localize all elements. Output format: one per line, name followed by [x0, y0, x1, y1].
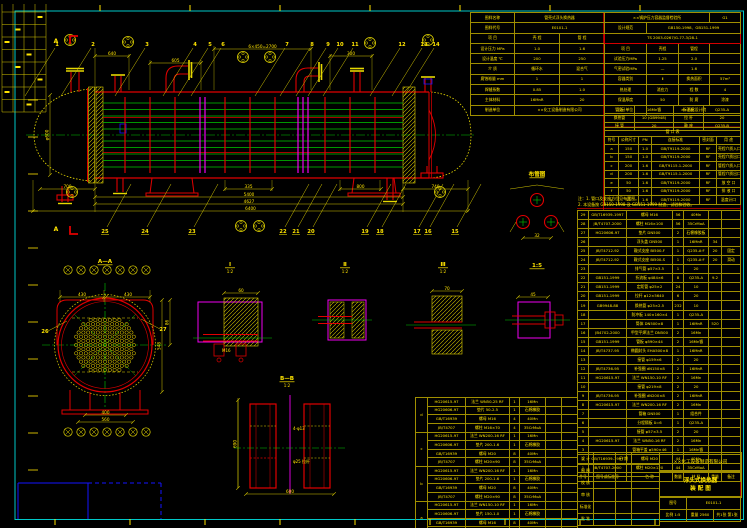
table-cell: 16Mn — [520, 398, 546, 407]
table-cell: 2 — [673, 373, 684, 382]
table-cell: 16MnR — [684, 364, 709, 373]
svg-text:430: 430 — [78, 292, 86, 297]
table-cell: a — [416, 501, 428, 528]
table-cell: 8 — [510, 518, 520, 527]
table-cell — [722, 410, 741, 419]
table-cell — [589, 419, 627, 428]
table-cell: 520 — [709, 319, 722, 328]
table-cell: 7 — [578, 410, 589, 419]
table-cell: 2 — [673, 364, 684, 373]
table-cell: 管 板 — [605, 106, 635, 114]
table-cell: 2 — [673, 382, 684, 391]
table-cell: 2 — [673, 229, 684, 238]
table-cell: GB/T9115.1-2000 — [652, 162, 700, 171]
svg-text:5: 5 — [208, 42, 212, 48]
table-cell — [562, 475, 578, 484]
table-cell: GB/T16939 — [428, 484, 466, 493]
table-cell: 6 — [578, 419, 589, 428]
table-cell: ××化工设备制造有限公司 — [515, 105, 605, 115]
table-cell — [546, 510, 562, 519]
svg-text:1: 1 — [55, 42, 59, 48]
svg-text:32: 32 — [534, 233, 540, 238]
table-cell — [562, 423, 578, 432]
table-cell — [722, 337, 741, 346]
table-cell: 10 — [684, 283, 709, 292]
table-cell: 浮头盖 DN500 — [627, 238, 673, 247]
table-cell: Q235-A — [704, 106, 741, 114]
table-cell: 腐蚀裕量 mm — [471, 74, 515, 84]
table-cell: 50 — [619, 187, 639, 196]
table-cell: 石棉橡胶板 — [684, 229, 709, 238]
table-cell — [632, 489, 660, 501]
table-cell: JB/T4736-95 — [589, 391, 627, 400]
table-cell: HG20615-97 — [589, 400, 627, 409]
table-cell: 鞍式支座 BⅠ500-S — [627, 256, 673, 265]
revision-box — [18, 483, 161, 519]
table-cell — [589, 238, 627, 247]
table-cell: 气密试验MPa — [605, 64, 647, 74]
table-cell — [594, 453, 616, 465]
table-cell: 16 — [578, 328, 589, 337]
table-cell: 设计温度 ℃ — [471, 54, 515, 64]
svg-text:22: 22 — [279, 229, 287, 235]
svg-text:6: 6 — [221, 42, 225, 48]
table-cell: 换热管 φ25×2.5 — [627, 301, 673, 310]
table-cell: 15 — [578, 337, 589, 346]
table-cell: 20 — [684, 292, 709, 301]
table-cell — [616, 489, 632, 501]
svg-text:8: 8 — [310, 42, 314, 48]
table-cell — [709, 391, 722, 400]
table-cell: f — [605, 187, 619, 196]
table-cell: 2 — [673, 428, 684, 437]
detail-e — [505, 302, 570, 338]
table-cell — [722, 238, 741, 247]
table-cell: 管程介质出口 — [717, 170, 741, 179]
table-cell: 5 — [578, 428, 589, 437]
table-cell: d — [416, 398, 428, 433]
table-cell — [562, 492, 578, 501]
table-cell — [562, 467, 578, 476]
table-cell: 管 口 表 — [605, 128, 741, 137]
design-data-table-right: ××锅炉压力容器监督检验所G1设计规范GB150-1998、GB151-1999… — [604, 12, 741, 116]
table-cell: 16Mn锻 — [684, 337, 709, 346]
table-cell: 40Mn — [520, 484, 546, 493]
table-cell — [722, 437, 741, 446]
table-cell: HG20606-97 — [428, 441, 466, 450]
nozzle-table: 管 口 表符号公称尺寸PN连接标准密封面用 途a1501.0GB/T9119-2… — [604, 127, 741, 205]
table-cell: 1 — [510, 432, 520, 441]
svg-text:17: 17 — [413, 229, 421, 235]
table-cell: 密封面 — [700, 136, 717, 145]
table-cell: 26 — [578, 238, 589, 247]
table-cell: JB/T4707 — [428, 423, 466, 432]
table-cell: RF — [700, 196, 717, 205]
table-cell — [546, 475, 562, 484]
table-cell: 1.25 — [647, 54, 679, 64]
table-cell: 混合气 — [560, 64, 605, 74]
table-cell — [709, 229, 722, 238]
table-cell: RF — [700, 162, 717, 171]
note-line: 2. 本设备按 GB150-1998 及 GB151-1999 制造、试验和验收… — [578, 202, 694, 208]
table-cell: Q235-A — [684, 274, 709, 283]
table-cell: 200 — [619, 162, 639, 171]
table-cell — [709, 211, 722, 220]
svg-text:2: 2 — [91, 42, 95, 48]
table-cell: GB/T16939 — [428, 449, 466, 458]
table-cell: 涂漆 — [710, 95, 741, 105]
table-cell: 法兰 WN150-10 RF — [627, 373, 673, 382]
table-cell — [546, 398, 562, 407]
table-cell: 壳程介质出口 — [717, 153, 741, 162]
table-cell: 标准化 — [578, 501, 594, 513]
table-cell: 石棉橡胶 — [520, 475, 546, 484]
table-cell — [722, 355, 741, 364]
table-cell: 螺柱 M16×100 — [627, 220, 673, 229]
svg-text:7: 7 — [285, 42, 289, 48]
table-cell: E0101-1 — [515, 23, 605, 33]
table-cell: 8 — [673, 274, 684, 283]
svg-text:4-φ13: 4-φ13 — [293, 426, 305, 431]
table-cell — [722, 274, 741, 283]
drawing-title-line2: 装 配 图 — [690, 484, 711, 492]
table-cell: 法兰 WN50-25 RF — [466, 398, 510, 407]
table-cell: GB/T9115.1-2000 — [652, 170, 700, 179]
table-cell: d — [605, 170, 619, 179]
table-cell: 1 — [515, 74, 560, 84]
table-cell: 螺母 M16 — [466, 518, 510, 527]
table-cell — [632, 501, 660, 513]
table-cell: 1 — [510, 510, 520, 519]
table-cell: JB/T4736-95 — [589, 364, 627, 373]
svg-text:1:2: 1:2 — [284, 383, 291, 388]
table-cell: 管 程 — [560, 33, 605, 43]
table-cell — [546, 449, 562, 458]
table-cell: JB4702-2000 — [589, 328, 627, 337]
table-cell — [589, 310, 627, 319]
table-cell: 滑动 — [722, 256, 741, 265]
table-cell — [594, 489, 616, 501]
svg-text:φ600: φ600 — [45, 129, 50, 140]
table-cell: TS 2003-0267/G-77-3/28-1 — [605, 33, 741, 43]
table-cell: 4 — [510, 423, 520, 432]
svg-text:86: 86 — [165, 320, 170, 326]
table-cell: 试验压力MPa — [605, 54, 647, 64]
table-cell — [546, 406, 562, 415]
table-cell: 150 — [619, 145, 639, 154]
table-cell — [594, 465, 616, 477]
table-cell: 20 — [578, 292, 589, 301]
table-cell: 1 — [560, 74, 605, 84]
table-cell: 23 — [578, 265, 589, 274]
table-cell — [722, 310, 741, 319]
table-cell — [709, 437, 722, 446]
svg-text:13: 13 — [420, 42, 428, 48]
table-cell: 20 — [709, 256, 722, 265]
table-cell: 8 — [578, 400, 589, 409]
svg-text:800: 800 — [357, 184, 365, 189]
table-cell — [722, 229, 741, 238]
table-cell: 1 — [510, 501, 520, 510]
table-cell — [562, 441, 578, 450]
table-cell: 定距管 φ25×2 — [627, 283, 673, 292]
title-block-info: 图号E0101-1比例 1:5重量 2560共1张 第1张 — [659, 496, 741, 522]
title-block-drawing-title: 浮头式换热器 装 配 图 — [659, 470, 742, 498]
table-cell: 20 — [684, 355, 709, 364]
flange-parts-table: dHG20615-97法兰 WN50-25 RF116MnHG20606-97垫… — [415, 397, 578, 528]
table-cell — [722, 391, 741, 400]
table-cell: Ⅱ — [647, 74, 679, 84]
table-cell: 壳程 — [647, 43, 679, 53]
table-cell: 20 — [684, 428, 709, 437]
table-cell: 20 — [560, 95, 605, 105]
table-cell: JB/T4707 — [428, 458, 466, 467]
table-cell: 16Mn — [520, 501, 546, 510]
table-cell: 40Mn — [520, 449, 546, 458]
design-data-table-left: 图样名称管壳式浮头换热器图样代号E0101-1项 目壳 程管 程设计压力 MPa… — [470, 12, 605, 116]
table-cell — [546, 441, 562, 450]
table-cell: 螺母 M16 — [627, 211, 673, 220]
svg-text:1:2: 1:2 — [342, 269, 349, 274]
svg-text:M16: M16 — [222, 348, 231, 353]
table-cell: GB/T9119-2000 — [652, 153, 700, 162]
table-cell: 石棉橡胶 — [520, 510, 546, 519]
table-cell: RF — [700, 153, 717, 162]
table-cell — [709, 292, 722, 301]
svg-text:335: 335 — [245, 184, 253, 189]
table-cell — [562, 484, 578, 493]
table-cell: 2 — [673, 437, 684, 446]
table-cell: HG20615-97 — [428, 432, 466, 441]
svg-text:9: 9 — [326, 42, 330, 48]
svg-text:60: 60 — [238, 288, 244, 293]
table-cell: 1.0 — [560, 85, 605, 95]
svg-text:15: 15 — [451, 229, 459, 235]
table-cell: 甲型平焊法兰 DN500 — [627, 328, 673, 337]
table-cell: 1 — [673, 310, 684, 319]
table-cell: GB/T9119-2000 — [652, 187, 700, 196]
table-cell: GB/T9119-2000 — [652, 179, 700, 188]
svg-text:Ⅲ: Ⅲ — [440, 262, 445, 268]
table-cell — [632, 453, 660, 465]
table-cell: 管板 φ590×44 — [627, 337, 673, 346]
table-cell — [562, 518, 578, 527]
table-cell — [546, 492, 562, 501]
table-cell: 管程 — [679, 43, 710, 53]
table-cell — [722, 292, 741, 301]
tube-pitch-detail — [510, 185, 564, 232]
table-cell — [562, 449, 578, 458]
svg-text:560: 560 — [102, 417, 110, 422]
table-cell — [589, 319, 627, 328]
table-cell: 8 — [510, 492, 520, 501]
table-cell: HG20606-97 — [428, 475, 466, 484]
table-cell: 法兰 WN200-16 RF — [627, 400, 673, 409]
svg-text:1:2: 1:2 — [440, 269, 447, 274]
svg-text:27: 27 — [159, 327, 167, 333]
table-cell: b — [605, 153, 619, 162]
table-cell — [562, 406, 578, 415]
svg-text:700: 700 — [64, 184, 72, 189]
table-cell: GB9948-88 — [589, 301, 627, 310]
table-cell: 排 液 口 — [717, 187, 741, 196]
table-cell — [722, 319, 741, 328]
table-cell: JB/T4707 — [428, 492, 466, 501]
table-cell: 防 腐 — [679, 95, 710, 105]
table-cell: 椭圆封头 EHA500×8 — [627, 346, 673, 355]
table-cell: 管壳式浮头换热器 — [515, 13, 605, 23]
table-cell: 图样名称 — [471, 13, 515, 23]
detail-b — [193, 298, 272, 362]
table-cell: Q235-A·F — [684, 256, 709, 265]
svg-text:11: 11 — [351, 42, 359, 48]
table-cell — [709, 328, 722, 337]
table-cell — [722, 400, 741, 409]
bom-table: 29GB/T16939-1997螺母 M165640Mn28JB/T4707-2… — [577, 210, 741, 482]
table-cell — [546, 518, 562, 527]
table-cell: 28 — [578, 220, 589, 229]
table-cell: 34 — [709, 238, 722, 247]
table-cell: 1 — [673, 256, 684, 265]
svg-text:25: 25 — [101, 229, 109, 235]
svg-text:4627: 4627 — [244, 199, 255, 204]
table-cell: 连接标准 — [652, 136, 700, 145]
table-cell: 4 — [510, 415, 520, 424]
table-cell: 16Mn — [684, 437, 709, 446]
table-cell: 图样代号 — [471, 23, 515, 33]
title-block-company: ××化工设备制造有限公司 — [659, 452, 742, 472]
table-cell: 螺母 M20 — [466, 449, 510, 458]
table-cell — [589, 410, 627, 419]
table-cell: 1 — [673, 410, 684, 419]
table-cell: 1 — [673, 346, 684, 355]
table-cell: 24 — [578, 256, 589, 265]
table-cell — [709, 355, 722, 364]
table-cell: JB/T4712-92 — [589, 256, 627, 265]
table-cell: JB/T4737-95 — [589, 346, 627, 355]
table-cell: 用 途 — [717, 136, 741, 145]
table-cell — [722, 428, 741, 437]
table-cell: 1.6 — [639, 179, 652, 188]
svg-text:Ⅱ: Ⅱ — [343, 262, 347, 268]
table-cell: 补强圈 dN200×8 — [627, 391, 673, 400]
table-cell: 16MnR — [684, 391, 709, 400]
table-cell: 35CrMoA — [520, 423, 546, 432]
table-cell: GB/T16939 — [428, 415, 466, 424]
table-cell: 16MnR — [515, 95, 560, 105]
svg-text:18: 18 — [376, 229, 384, 235]
table-cell: 50 — [647, 95, 679, 105]
svg-text:A: A — [54, 226, 59, 233]
table-cell — [562, 415, 578, 424]
table-cell: 壳程介质入口 — [717, 145, 741, 154]
table-cell: 2 — [673, 355, 684, 364]
table-cell: 40Mn — [520, 518, 546, 527]
table-cell: 11 — [578, 373, 589, 382]
table-cell — [709, 283, 722, 292]
table-cell: 1.6 — [679, 64, 710, 74]
table-cell: Q235-A — [684, 419, 709, 428]
table-cell: 分程隔板 δ=6 — [627, 419, 673, 428]
table-cell: 固定 — [722, 247, 741, 256]
title-block-signatures: 设 计日 期制 图校 核审 核标准化批 准 — [577, 452, 660, 526]
table-cell: 25 — [578, 247, 589, 256]
svg-text:430: 430 — [124, 292, 132, 297]
svg-text:640: 640 — [108, 51, 116, 56]
svg-text:400: 400 — [102, 410, 110, 415]
table-cell: 共1张 第1张 — [714, 509, 741, 522]
table-cell: 8 — [510, 449, 520, 458]
table-cell: 2 — [673, 337, 684, 346]
svg-text:14: 14 — [432, 42, 440, 48]
table-cell: 9 — [578, 391, 589, 400]
table-cell: 热处理 — [605, 85, 647, 95]
table-cell: 2 — [673, 328, 684, 337]
table-cell: HG20606-97 — [428, 406, 466, 415]
table-cell: 20 — [684, 382, 709, 391]
table-cell — [709, 265, 722, 274]
table-cell: 29 — [578, 211, 589, 220]
table-cell: PN — [639, 136, 652, 145]
table-cell: 1.0 — [639, 145, 652, 154]
table-cell — [589, 265, 627, 274]
table-cell: 排气管 φ57×3.5 — [627, 265, 673, 274]
table-cell — [722, 211, 741, 220]
table-cell: Q235-A·F — [684, 247, 709, 256]
svg-text:605: 605 — [172, 58, 180, 63]
svg-text:B—B: B—B — [280, 376, 294, 382]
table-cell: 4 — [710, 85, 741, 95]
table-cell — [616, 465, 632, 477]
table-cell: 16MnR — [684, 319, 709, 328]
table-cell: 管程介质入口 — [717, 162, 741, 171]
table-cell: RF — [700, 187, 717, 196]
table-cell: 250 — [560, 54, 605, 64]
table-cell — [709, 346, 722, 355]
table-cell: 2 — [673, 400, 684, 409]
table-cell: 筒体 DN500×8 — [627, 319, 673, 328]
table-cell: 垫片 DN500 — [627, 229, 673, 238]
table-cell: 设计压力 MPa — [471, 43, 515, 53]
table-cell: 1.6 — [560, 43, 605, 53]
table-cell: 1.6 — [639, 170, 652, 179]
table-cell — [709, 400, 722, 409]
table-cell: 1 — [673, 419, 684, 428]
table-cell: 16Mn锻 — [635, 106, 674, 114]
table-cell: 放 空 口 — [717, 179, 741, 188]
table-cell — [722, 382, 741, 391]
table-cell: 16Mn — [520, 467, 546, 476]
table-cell — [710, 64, 741, 74]
svg-text:6×450=2700: 6×450=2700 — [248, 44, 277, 49]
table-cell — [709, 310, 722, 319]
table-cell: 法兰 WN200-16 RF — [466, 432, 510, 441]
table-cell: 200 — [619, 170, 639, 179]
table-cell: 10 (GB9948) — [635, 114, 674, 122]
table-cell: 螺母 M16 — [466, 415, 510, 424]
svg-text:1:2: 1:2 — [227, 269, 234, 274]
table-cell: 消应力 — [647, 85, 679, 95]
table-cell: 鞍式支座 BⅠ500-F — [627, 247, 673, 256]
table-cell: 审 核 — [578, 489, 594, 501]
svg-text:21: 21 — [292, 229, 300, 235]
table-cell: 19 — [578, 301, 589, 310]
table-cell: 22 — [578, 274, 589, 283]
table-cell — [589, 382, 627, 391]
table-cell: Q235-A — [684, 310, 709, 319]
table-cell: 40Mn — [520, 415, 546, 424]
section-a-a — [42, 283, 168, 414]
